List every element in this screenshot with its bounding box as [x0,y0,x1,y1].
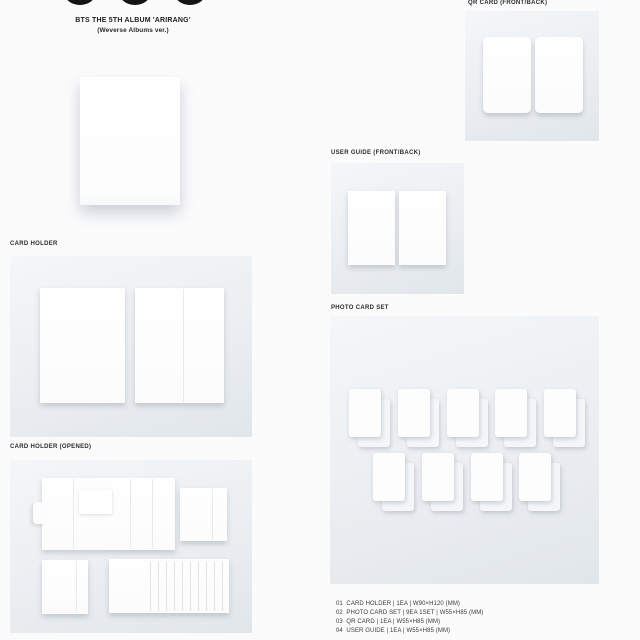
logo-dot-icon [175,0,205,5]
photo-card-front [495,389,527,437]
photo-card-front [519,453,551,501]
spec-line: 02 PHOTO CARD SET | 9EA 1SET | W55×H85 (… [336,609,483,618]
spec-line: 01 CARD HOLDER | 1EA | W90×H120 (MM) [336,600,483,609]
photo-card-front [373,453,405,501]
fold-line [76,561,77,613]
stacked-card-edges [143,561,223,611]
spec-line: 03 QR CARD | 1EA | W55×H85 (MM) [336,618,483,627]
fold-line [130,479,131,549]
infographic-page: BTS THE 5TH ALBUM 'ARIRANG' (Weverse Alb… [0,0,640,640]
card-holder-front [40,288,125,403]
fold-line [73,479,74,549]
card-holder-opened-panel [10,460,252,633]
photo-card-front [422,453,454,501]
spec-line: 04 USER GUIDE | 1EA | W55×H85 (MM) [336,627,483,636]
pocket-piece [42,560,88,614]
photo-card-front [471,453,503,501]
section-label-qr-card: QR CARD (FRONT/BACK) [468,0,547,6]
user-guide-front [348,191,395,265]
logo-dot-icon [65,0,95,5]
card-stack-fanned [109,559,229,613]
album-subtitle: (Weverse Albums ver.) [33,27,233,34]
user-guide-panel [331,163,464,294]
folded-flap-piece [180,488,227,541]
closure-tab [33,502,44,524]
qr-card-front [483,37,531,113]
album-title: BTS THE 5TH ALBUM 'ARIRANG' [33,17,233,24]
photo-card-front [544,389,576,437]
section-label-photo-card-set: PHOTO CARD SET [331,305,389,311]
card-window [79,490,112,514]
card-holder-unfolded-layout [42,478,175,550]
fold-line [183,289,184,402]
fold-line [152,479,153,549]
section-label-card-holder: CARD HOLDER [10,241,58,247]
qr-card-panel [465,11,599,141]
section-label-card-holder-opened: CARD HOLDER (OPENED) [10,444,91,450]
photo-card-front [349,389,381,437]
photo-card-front [447,389,479,437]
fold-line [212,489,213,540]
logo-dot-icon [120,0,150,5]
user-guide-back [399,191,446,265]
section-label-user-guide: USER GUIDE (FRONT/BACK) [331,150,421,156]
qr-card-back [535,37,583,113]
album-cover-mockup [80,77,180,205]
card-holder-back [135,288,224,403]
card-holder-panel [10,256,252,437]
photo-card-front [398,389,430,437]
spec-list: 01 CARD HOLDER | 1EA | W90×H120 (MM)02 P… [336,600,483,636]
photo-card-set-panel [330,316,599,584]
